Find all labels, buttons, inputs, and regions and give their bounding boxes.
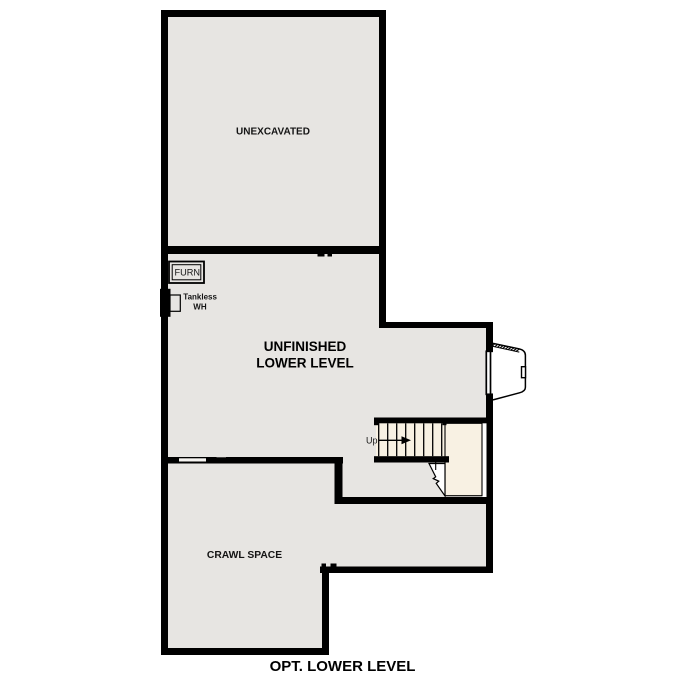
svg-text:CRAWL SPACE: CRAWL SPACE	[207, 550, 282, 561]
svg-text:WH: WH	[193, 303, 207, 312]
svg-text:Tankless: Tankless	[183, 293, 217, 302]
svg-text:OPT. LOWER LEVEL: OPT. LOWER LEVEL	[270, 658, 416, 675]
svg-text:UNFINISHED: UNFINISHED	[264, 339, 347, 354]
svg-text:UNEXCAVATED: UNEXCAVATED	[236, 127, 310, 138]
svg-text:Up: Up	[366, 435, 378, 445]
svg-text:FURN: FURN	[175, 268, 201, 278]
svg-text:LOWER LEVEL: LOWER LEVEL	[256, 356, 354, 371]
